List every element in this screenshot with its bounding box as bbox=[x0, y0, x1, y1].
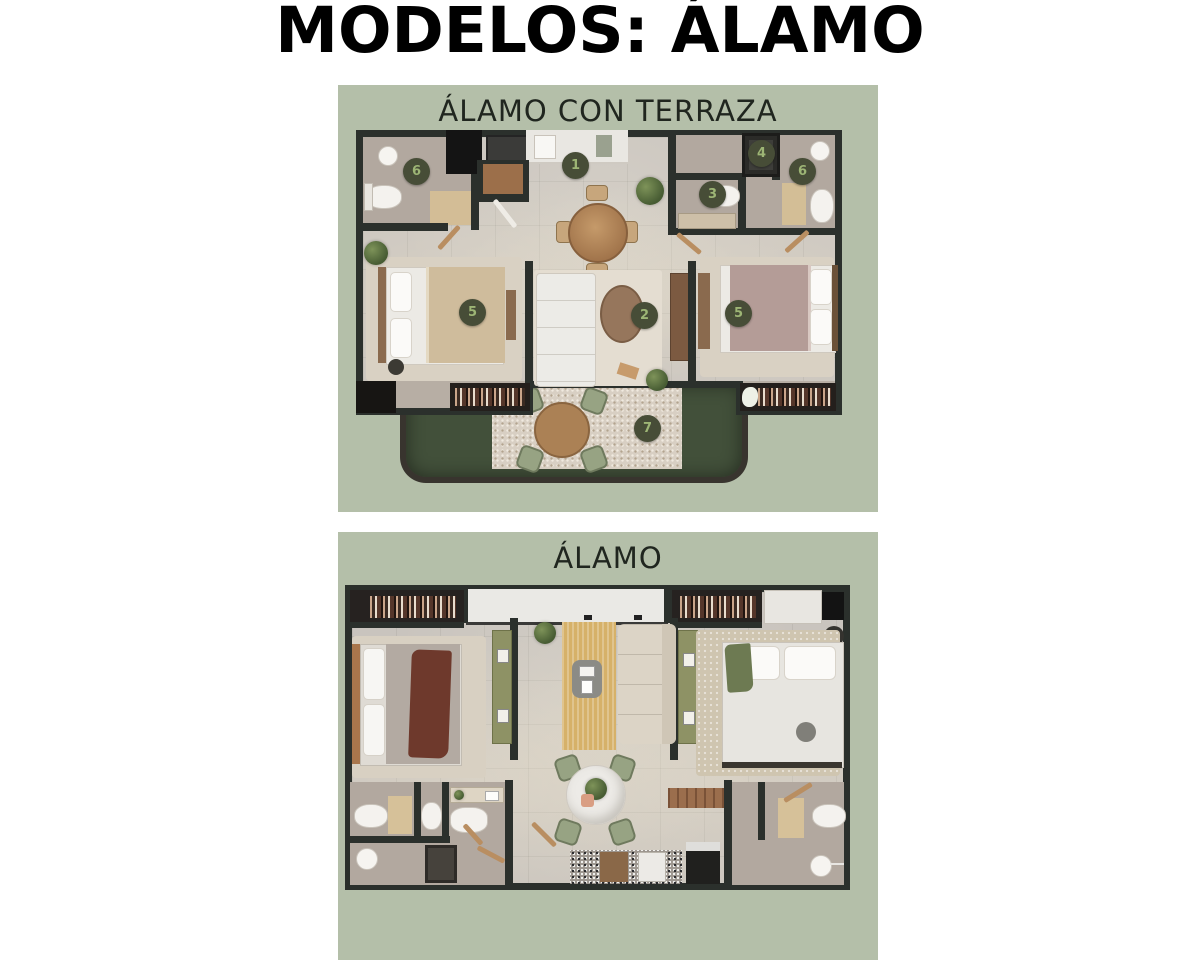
desk-item bbox=[683, 653, 695, 667]
room-marker-7: 7 bbox=[634, 415, 661, 442]
wall bbox=[675, 173, 745, 180]
bath-shelf bbox=[450, 787, 504, 803]
counter-sink bbox=[638, 852, 666, 882]
shower-left bbox=[430, 191, 472, 225]
kitchen-sink bbox=[534, 135, 556, 159]
pillow bbox=[363, 648, 385, 700]
appliance-top bbox=[686, 842, 720, 851]
pillow bbox=[363, 704, 385, 756]
coffee-table bbox=[572, 660, 602, 698]
counter-board bbox=[600, 852, 628, 882]
room-marker-3: 3 bbox=[699, 181, 726, 208]
plant bbox=[364, 241, 388, 265]
bath-mat bbox=[388, 796, 412, 834]
sink-icon bbox=[810, 855, 832, 877]
wall bbox=[356, 223, 448, 231]
dining-chair bbox=[586, 185, 608, 201]
hanging-clothes bbox=[758, 388, 831, 406]
sofa bbox=[536, 273, 596, 387]
plant bbox=[636, 177, 664, 205]
bed-throw bbox=[724, 643, 753, 693]
panel-alamo-con-terraza: ÁLAMO CON TERRAZA bbox=[338, 85, 878, 512]
plant-pot bbox=[581, 794, 594, 807]
plant bbox=[534, 622, 556, 644]
bed-bench bbox=[506, 290, 516, 340]
pillow bbox=[390, 272, 412, 312]
room-marker-6-right: 6 bbox=[789, 158, 816, 185]
page-title: MODELOS: ÁLAMO bbox=[0, 0, 1200, 67]
window-tick bbox=[584, 615, 592, 620]
room-marker-4: 4 bbox=[748, 140, 775, 167]
wall bbox=[738, 173, 746, 235]
toilet-icon bbox=[354, 804, 388, 828]
appliance bbox=[686, 848, 720, 884]
closet-left bbox=[450, 383, 530, 411]
dresser bbox=[698, 273, 710, 349]
wall bbox=[758, 782, 765, 840]
tv-console bbox=[670, 273, 690, 361]
wall bbox=[525, 261, 533, 388]
closet-top-right bbox=[672, 590, 762, 624]
room-marker-5-left: 5 bbox=[459, 299, 486, 326]
bed-headboard bbox=[378, 267, 386, 363]
wall bbox=[442, 782, 449, 842]
room-marker-2: 2 bbox=[631, 302, 658, 329]
sink-icon bbox=[810, 141, 830, 161]
wall bbox=[668, 130, 676, 235]
bath-mat bbox=[778, 798, 804, 838]
sink-icon bbox=[356, 848, 378, 870]
hanging-clothes bbox=[680, 596, 756, 618]
wall bbox=[688, 261, 696, 388]
bath-mat bbox=[782, 183, 806, 225]
kitchen-cabinet bbox=[483, 164, 523, 194]
tray bbox=[579, 666, 595, 677]
vanity bbox=[678, 213, 736, 229]
toilet-icon bbox=[812, 804, 846, 828]
closet-right bbox=[740, 383, 836, 411]
tv-box bbox=[822, 592, 844, 620]
shelf-box bbox=[485, 791, 499, 801]
wall bbox=[668, 228, 842, 235]
toilet-icon bbox=[421, 802, 442, 830]
dining-table bbox=[568, 203, 628, 263]
desk-right bbox=[678, 630, 698, 744]
sink-icon bbox=[378, 146, 398, 166]
page: MODELOS: ÁLAMO ÁLAMO CON TERRAZA bbox=[0, 0, 1200, 960]
room-marker-5-right: 5 bbox=[725, 300, 752, 327]
wall bbox=[672, 622, 762, 628]
stool bbox=[388, 359, 404, 375]
closet-light bbox=[742, 387, 758, 407]
bed-throw bbox=[408, 649, 452, 758]
tray bbox=[581, 680, 593, 694]
wall bbox=[505, 780, 513, 890]
wood-console bbox=[668, 788, 726, 808]
bed-headboard bbox=[352, 644, 360, 764]
side-chair bbox=[796, 722, 816, 742]
storage-box bbox=[356, 381, 396, 413]
hanging-clothes bbox=[370, 596, 456, 618]
plant bbox=[646, 369, 668, 391]
wall bbox=[414, 782, 421, 842]
toilet-tank bbox=[364, 183, 373, 211]
wall bbox=[350, 836, 450, 843]
desk-item bbox=[497, 709, 509, 723]
window-tick bbox=[634, 615, 642, 620]
floorplan-alamo bbox=[338, 532, 878, 960]
panel-alamo: ÁLAMO bbox=[338, 532, 878, 960]
faucet-line bbox=[830, 863, 844, 865]
desk-left bbox=[492, 630, 512, 744]
window-band bbox=[466, 589, 668, 625]
pillow bbox=[390, 318, 412, 358]
wardrobe bbox=[764, 590, 822, 624]
room-marker-1: 1 bbox=[562, 152, 589, 179]
dining-table bbox=[566, 765, 626, 825]
closet-top-left bbox=[350, 590, 464, 624]
sofa-back bbox=[662, 624, 676, 744]
wall bbox=[724, 780, 732, 890]
bed-headboard bbox=[832, 265, 838, 351]
desk-item bbox=[497, 649, 509, 663]
floorplan-alamo-con-terraza: 1 2 3 4 5 5 6 6 7 bbox=[338, 85, 878, 512]
shower-box bbox=[425, 845, 457, 883]
bed-footboard bbox=[722, 762, 842, 768]
pillow bbox=[810, 269, 832, 305]
room-marker-6-left: 6 bbox=[403, 158, 430, 185]
toilet-icon bbox=[810, 189, 834, 223]
pillow bbox=[784, 646, 836, 680]
shelf-plant bbox=[454, 790, 464, 800]
wall bbox=[350, 622, 464, 628]
kitchen-item bbox=[596, 135, 612, 157]
hanging-clothes bbox=[455, 388, 525, 406]
pillow bbox=[810, 309, 832, 345]
desk-item bbox=[683, 711, 695, 725]
